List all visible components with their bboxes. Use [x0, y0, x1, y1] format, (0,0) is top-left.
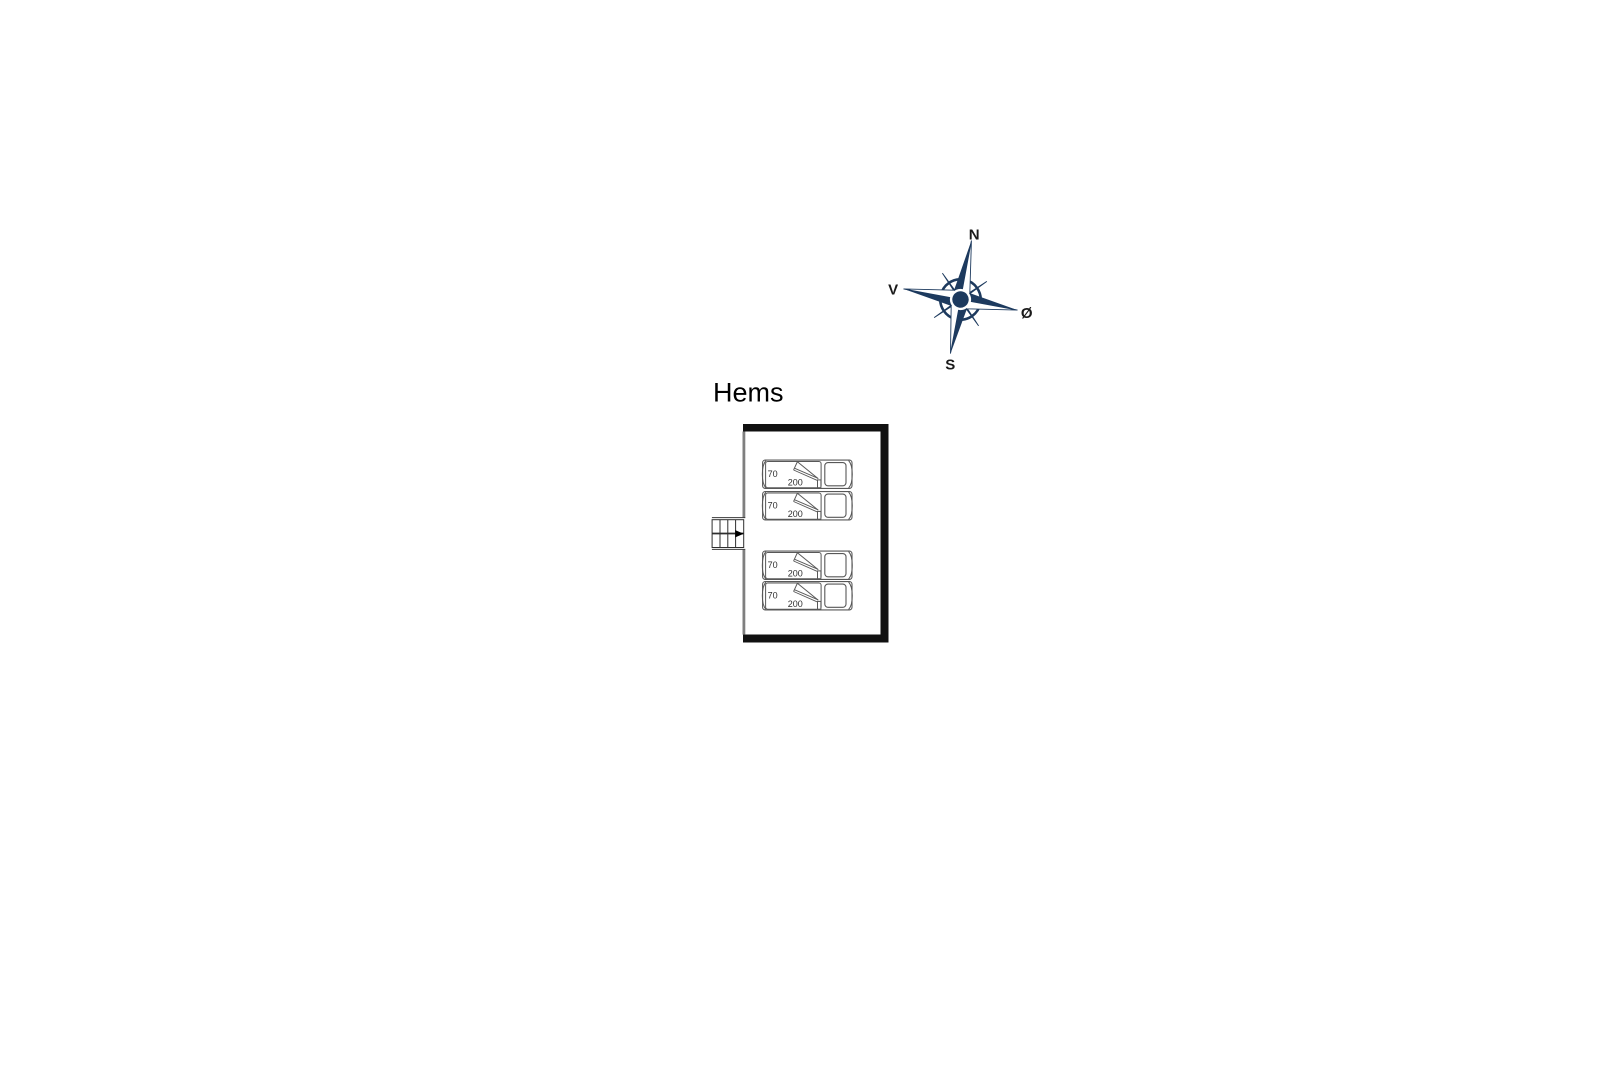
svg-text:N: N — [969, 227, 980, 244]
svg-text:Hems: Hems — [713, 377, 784, 407]
svg-text:S: S — [945, 356, 955, 373]
svg-text:V: V — [888, 282, 898, 299]
svg-text:Ø: Ø — [1021, 305, 1033, 322]
